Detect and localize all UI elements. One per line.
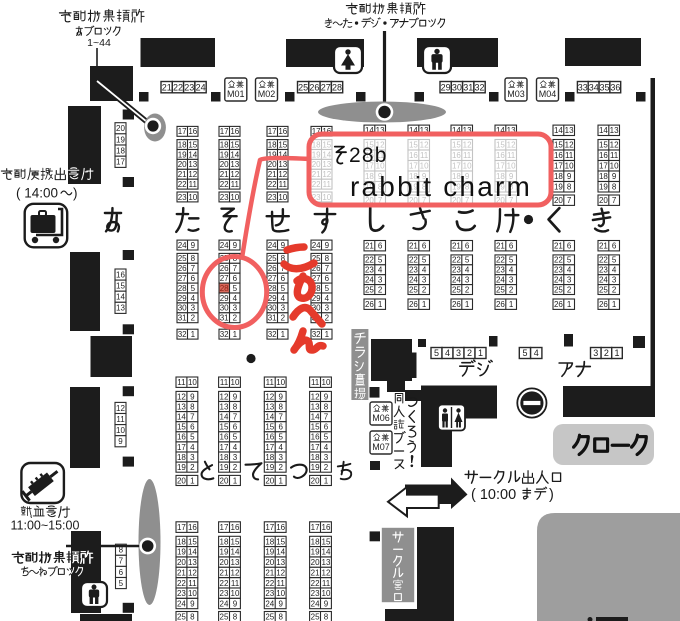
svg-text:15: 15 <box>599 141 608 150</box>
svg-text:15: 15 <box>177 423 186 432</box>
svg-text:5: 5 <box>509 256 514 265</box>
svg-text:10: 10 <box>230 193 239 202</box>
svg-text:M04: M04 <box>539 89 557 99</box>
svg-text:25: 25 <box>311 613 320 621</box>
svg-text:9: 9 <box>278 392 283 401</box>
svg-text:24: 24 <box>365 276 374 285</box>
svg-text:7: 7 <box>191 264 196 273</box>
svg-text:17: 17 <box>554 162 563 171</box>
svg-text:17: 17 <box>265 443 274 452</box>
svg-text:10: 10 <box>231 589 240 598</box>
svg-text:11: 11 <box>279 180 288 189</box>
svg-text:24: 24 <box>220 600 229 609</box>
svg-text:8: 8 <box>278 613 283 621</box>
svg-text:3: 3 <box>456 348 461 358</box>
svg-text:23: 23 <box>265 589 274 598</box>
svg-text:19: 19 <box>311 548 320 557</box>
svg-text:8: 8 <box>190 613 195 621</box>
svg-text:33: 33 <box>578 82 588 92</box>
svg-text:28: 28 <box>220 284 229 293</box>
svg-text:14: 14 <box>220 413 229 422</box>
svg-text:24: 24 <box>268 241 277 250</box>
svg-text:26: 26 <box>554 300 563 309</box>
svg-text:19: 19 <box>177 548 186 557</box>
svg-text:20: 20 <box>311 476 320 485</box>
svg-text:15: 15 <box>188 537 197 546</box>
svg-text:22: 22 <box>496 256 505 265</box>
svg-text:2: 2 <box>233 463 238 472</box>
svg-text:16: 16 <box>230 127 239 136</box>
svg-text:6: 6 <box>378 242 383 251</box>
svg-text:5: 5 <box>567 256 572 265</box>
svg-text:19: 19 <box>265 463 274 472</box>
svg-text:1: 1 <box>612 300 617 309</box>
svg-text:29: 29 <box>220 294 229 303</box>
svg-text:M02: M02 <box>258 89 276 99</box>
svg-text:4: 4 <box>278 443 283 452</box>
svg-text:23: 23 <box>268 193 277 202</box>
svg-text:17: 17 <box>177 523 186 532</box>
svg-text:20: 20 <box>554 196 563 205</box>
svg-text:14: 14 <box>554 126 563 135</box>
svg-text:17: 17 <box>220 523 229 532</box>
svg-text:11: 11 <box>266 378 275 387</box>
svg-text:1: 1 <box>233 330 238 339</box>
svg-text:18: 18 <box>554 172 563 181</box>
svg-text:17: 17 <box>268 127 277 136</box>
svg-text:25: 25 <box>452 285 461 294</box>
svg-text:6: 6 <box>191 274 196 283</box>
svg-text:36: 36 <box>610 82 620 92</box>
svg-text:21: 21 <box>220 568 229 577</box>
svg-text:24: 24 <box>178 241 187 250</box>
svg-text:3: 3 <box>281 304 286 313</box>
svg-text:13: 13 <box>565 126 574 135</box>
svg-text:22: 22 <box>311 579 320 588</box>
svg-text:16: 16 <box>599 151 608 160</box>
svg-text:23: 23 <box>599 266 608 275</box>
svg-text:20: 20 <box>265 558 274 567</box>
svg-text:21: 21 <box>365 242 374 251</box>
svg-text:16: 16 <box>276 523 285 532</box>
svg-text:2: 2 <box>378 285 383 294</box>
svg-text:18: 18 <box>311 537 320 546</box>
svg-text:4: 4 <box>422 266 427 275</box>
svg-text:9: 9 <box>190 392 195 401</box>
svg-text:10: 10 <box>231 378 240 387</box>
svg-text:17: 17 <box>599 162 608 171</box>
svg-text:1~44: 1~44 <box>87 37 111 49</box>
svg-text:14: 14 <box>599 126 608 135</box>
svg-text:1: 1 <box>281 330 286 339</box>
svg-text:7: 7 <box>612 196 617 205</box>
svg-text:6: 6 <box>190 423 195 432</box>
svg-text:3: 3 <box>509 276 514 285</box>
svg-text:23: 23 <box>178 193 187 202</box>
svg-text:3: 3 <box>378 276 383 285</box>
svg-text:17: 17 <box>220 443 229 452</box>
svg-text:34: 34 <box>589 82 599 92</box>
svg-text:21: 21 <box>554 242 563 251</box>
svg-text:12: 12 <box>188 170 197 179</box>
svg-text:2: 2 <box>509 285 514 294</box>
svg-text:4: 4 <box>190 443 195 452</box>
svg-text:14: 14 <box>177 413 186 422</box>
svg-text:27: 27 <box>321 82 331 92</box>
svg-text:5: 5 <box>422 256 427 265</box>
svg-text:17: 17 <box>177 443 186 452</box>
svg-text:3: 3 <box>612 276 617 285</box>
svg-text:9: 9 <box>118 437 123 446</box>
svg-text:8: 8 <box>324 402 329 411</box>
svg-text:M07: M07 <box>372 442 390 452</box>
svg-text:2: 2 <box>324 463 329 472</box>
svg-text:14: 14 <box>276 548 285 557</box>
svg-text:12: 12 <box>322 568 331 577</box>
svg-text:28: 28 <box>332 82 342 92</box>
svg-text:28b: 28b <box>349 144 388 167</box>
svg-text:13: 13 <box>230 160 239 169</box>
svg-text:24: 24 <box>599 276 608 285</box>
svg-text:14: 14 <box>188 548 197 557</box>
svg-text:35: 35 <box>599 82 609 92</box>
svg-text:2: 2 <box>612 285 617 294</box>
svg-text:2: 2 <box>281 314 286 323</box>
svg-text:24: 24 <box>311 600 320 609</box>
svg-text:8: 8 <box>278 402 283 411</box>
svg-text:26: 26 <box>268 264 277 273</box>
svg-text:10: 10 <box>188 193 197 202</box>
svg-text:2: 2 <box>465 285 470 294</box>
svg-text:23: 23 <box>311 589 320 598</box>
svg-text:8: 8 <box>612 183 617 192</box>
svg-text:5: 5 <box>233 433 238 442</box>
svg-text:7: 7 <box>567 196 572 205</box>
svg-text:31: 31 <box>463 82 473 92</box>
svg-text:11: 11 <box>231 180 240 189</box>
svg-text:18: 18 <box>220 453 229 462</box>
svg-text:2: 2 <box>278 463 283 472</box>
svg-text:9: 9 <box>324 392 329 401</box>
svg-text:1: 1 <box>614 348 619 358</box>
svg-text:25: 25 <box>178 254 187 263</box>
svg-text:23: 23 <box>496 266 505 275</box>
svg-text:27: 27 <box>220 274 229 283</box>
svg-text:6: 6 <box>278 423 283 432</box>
svg-text:16: 16 <box>116 270 125 279</box>
svg-text:4: 4 <box>465 266 470 275</box>
svg-text:12: 12 <box>278 170 287 179</box>
svg-text:5: 5 <box>281 284 286 293</box>
svg-text:8: 8 <box>190 402 195 411</box>
svg-text:19: 19 <box>177 463 186 472</box>
svg-text:26: 26 <box>452 300 461 309</box>
svg-text:23: 23 <box>409 266 418 275</box>
svg-text:18: 18 <box>178 140 187 149</box>
svg-text:11: 11 <box>322 579 331 588</box>
svg-text:5: 5 <box>325 284 330 293</box>
svg-text:23: 23 <box>554 266 563 275</box>
svg-text:17: 17 <box>116 158 125 167</box>
svg-text:22: 22 <box>554 256 563 265</box>
svg-text:26: 26 <box>599 300 608 309</box>
svg-text:1: 1 <box>378 300 383 309</box>
svg-text:12: 12 <box>231 568 240 577</box>
svg-text:13: 13 <box>116 304 125 313</box>
svg-text:4: 4 <box>281 294 286 303</box>
svg-text:4: 4 <box>191 294 196 303</box>
svg-text:18: 18 <box>177 537 186 546</box>
svg-text:30: 30 <box>178 304 187 313</box>
svg-text:4: 4 <box>534 348 539 358</box>
svg-text:32: 32 <box>178 330 187 339</box>
svg-text:1: 1 <box>324 476 329 485</box>
svg-text:7: 7 <box>190 413 195 422</box>
svg-text:9: 9 <box>324 600 329 609</box>
svg-text:8: 8 <box>325 254 330 263</box>
svg-text:25: 25 <box>298 82 308 92</box>
svg-text:5: 5 <box>191 284 196 293</box>
svg-text:16: 16 <box>554 151 563 160</box>
svg-text:26: 26 <box>309 82 319 92</box>
svg-text:15: 15 <box>322 537 331 546</box>
svg-text:25: 25 <box>220 613 229 621</box>
svg-text:6: 6 <box>119 568 124 577</box>
svg-text:7: 7 <box>233 264 238 273</box>
svg-text:13: 13 <box>188 558 197 567</box>
svg-text:6: 6 <box>233 274 238 283</box>
svg-text:11: 11 <box>277 579 286 588</box>
svg-text:12: 12 <box>177 392 186 401</box>
svg-text:21: 21 <box>496 242 505 251</box>
svg-text:9: 9 <box>612 172 617 181</box>
svg-text:2: 2 <box>190 463 195 472</box>
svg-text:10: 10 <box>610 162 619 171</box>
svg-text:24: 24 <box>496 276 505 285</box>
svg-text:29: 29 <box>178 294 187 303</box>
svg-text:22: 22 <box>265 579 274 588</box>
svg-text:24: 24 <box>409 276 418 285</box>
svg-text:M03: M03 <box>507 89 525 99</box>
svg-text:3: 3 <box>325 304 330 313</box>
svg-text:5: 5 <box>378 256 383 265</box>
svg-text:29: 29 <box>268 294 277 303</box>
svg-text:2: 2 <box>467 348 472 358</box>
svg-text:21: 21 <box>265 568 274 577</box>
svg-text:21: 21 <box>178 170 187 179</box>
svg-text:26: 26 <box>178 264 187 273</box>
svg-text:14: 14 <box>188 150 197 159</box>
svg-text:30: 30 <box>452 82 462 92</box>
svg-text:rabbit charm: rabbit charm <box>350 171 532 202</box>
svg-text:27: 27 <box>178 274 187 283</box>
svg-text:12: 12 <box>311 392 320 401</box>
svg-text:5: 5 <box>324 433 329 442</box>
svg-text:25: 25 <box>268 254 277 263</box>
svg-text:2: 2 <box>567 285 572 294</box>
svg-text:5: 5 <box>278 433 283 442</box>
svg-text:15: 15 <box>230 140 239 149</box>
svg-text:25: 25 <box>365 285 374 294</box>
svg-text:7: 7 <box>278 413 283 422</box>
svg-text:6: 6 <box>233 423 238 432</box>
svg-text:4: 4 <box>445 348 450 358</box>
svg-text:14: 14 <box>322 548 331 557</box>
svg-text:4: 4 <box>378 266 383 275</box>
svg-text:12: 12 <box>230 170 239 179</box>
svg-text:9: 9 <box>233 600 238 609</box>
svg-text:26: 26 <box>496 300 505 309</box>
svg-text:12: 12 <box>610 141 619 150</box>
svg-text:8: 8 <box>233 402 238 411</box>
svg-text:13: 13 <box>276 558 285 567</box>
svg-text:1: 1 <box>422 300 427 309</box>
svg-text:24: 24 <box>220 241 229 250</box>
svg-text:5: 5 <box>434 348 439 358</box>
svg-text:12: 12 <box>116 404 125 413</box>
svg-text:4: 4 <box>324 443 329 452</box>
svg-text:10: 10 <box>278 193 287 202</box>
svg-text:3: 3 <box>324 453 329 462</box>
svg-text:23: 23 <box>177 589 186 598</box>
svg-text:3: 3 <box>191 304 196 313</box>
svg-text:6: 6 <box>509 242 514 251</box>
svg-text:1: 1 <box>478 348 483 358</box>
svg-text:7: 7 <box>325 264 330 273</box>
svg-text:19: 19 <box>599 183 608 192</box>
svg-text:20: 20 <box>220 160 229 169</box>
svg-text:28: 28 <box>178 284 187 293</box>
svg-text:11: 11 <box>177 378 186 387</box>
svg-text:11: 11 <box>565 151 574 160</box>
svg-text:20: 20 <box>220 476 229 485</box>
svg-text:19: 19 <box>554 183 563 192</box>
svg-text:2: 2 <box>604 348 609 358</box>
svg-text:23: 23 <box>184 82 194 92</box>
svg-text:20: 20 <box>268 160 277 169</box>
svg-text:24: 24 <box>312 241 321 250</box>
svg-text:15: 15 <box>265 423 274 432</box>
svg-text:8: 8 <box>233 613 238 621</box>
svg-text:10: 10 <box>322 589 331 598</box>
svg-text:13: 13 <box>220 402 229 411</box>
svg-text:12: 12 <box>220 392 229 401</box>
svg-text:1: 1 <box>325 330 330 339</box>
svg-text:25: 25 <box>177 613 186 621</box>
svg-text:22: 22 <box>268 180 277 189</box>
svg-text:2: 2 <box>191 314 196 323</box>
svg-text:19: 19 <box>220 150 229 159</box>
svg-text:6: 6 <box>465 242 470 251</box>
svg-text:7: 7 <box>324 413 329 422</box>
svg-text:24: 24 <box>452 276 461 285</box>
svg-text:21: 21 <box>162 82 172 92</box>
svg-text:( 14:00: ( 14:00 <box>16 186 58 201</box>
svg-text:6: 6 <box>324 423 329 432</box>
svg-text:12: 12 <box>276 568 285 577</box>
svg-text:19: 19 <box>265 548 274 557</box>
svg-text:3: 3 <box>422 276 427 285</box>
svg-text:24: 24 <box>554 276 563 285</box>
svg-text:1: 1 <box>509 300 514 309</box>
svg-text:9: 9 <box>191 241 196 250</box>
svg-text:15: 15 <box>231 537 240 546</box>
svg-text:10: 10 <box>565 162 574 171</box>
svg-text:31: 31 <box>220 314 229 323</box>
svg-text:16: 16 <box>188 127 197 136</box>
svg-text:14: 14 <box>116 293 125 302</box>
svg-text:3: 3 <box>190 453 195 462</box>
svg-text:1: 1 <box>191 330 196 339</box>
svg-text:4: 4 <box>233 443 238 452</box>
svg-text:1: 1 <box>465 300 470 309</box>
svg-text:13: 13 <box>278 160 287 169</box>
svg-text:11:00~15:00: 11:00~15:00 <box>11 519 80 533</box>
svg-text:18: 18 <box>220 537 229 546</box>
svg-text:19: 19 <box>220 548 229 557</box>
svg-text:5: 5 <box>190 433 195 442</box>
svg-text:3: 3 <box>593 348 598 358</box>
svg-text:8: 8 <box>191 254 196 263</box>
svg-text:18: 18 <box>265 537 274 546</box>
svg-text:19: 19 <box>116 135 125 144</box>
svg-text:15: 15 <box>116 282 125 291</box>
svg-text:24: 24 <box>265 600 274 609</box>
svg-text:13: 13 <box>311 402 320 411</box>
svg-text:9: 9 <box>233 241 238 250</box>
svg-text:20: 20 <box>265 476 274 485</box>
svg-text:29: 29 <box>441 82 451 92</box>
svg-text:22: 22 <box>220 180 229 189</box>
svg-text:14: 14 <box>231 548 240 557</box>
svg-text:18: 18 <box>116 147 125 156</box>
svg-text:8: 8 <box>567 183 572 192</box>
svg-text:5: 5 <box>522 348 527 358</box>
svg-text:30: 30 <box>268 304 277 313</box>
svg-text:13: 13 <box>231 558 240 567</box>
svg-text:18: 18 <box>268 140 277 149</box>
svg-text:4: 4 <box>325 294 330 303</box>
svg-text:): ) <box>549 487 554 503</box>
svg-text:27: 27 <box>268 274 277 283</box>
svg-text:22: 22 <box>177 579 186 588</box>
svg-text:14: 14 <box>265 413 274 422</box>
svg-text:18: 18 <box>220 140 229 149</box>
svg-text:10: 10 <box>276 589 285 598</box>
svg-text:12: 12 <box>188 568 197 577</box>
svg-text:M01: M01 <box>227 89 245 99</box>
svg-text:11: 11 <box>311 378 320 387</box>
svg-text:20: 20 <box>177 558 186 567</box>
svg-text:4: 4 <box>509 266 514 275</box>
svg-text:25: 25 <box>599 285 608 294</box>
svg-text:2: 2 <box>325 314 330 323</box>
svg-text:11: 11 <box>220 378 229 387</box>
svg-text:3: 3 <box>278 453 283 462</box>
svg-text:14: 14 <box>230 150 239 159</box>
svg-text:23: 23 <box>220 589 229 598</box>
svg-text:3: 3 <box>233 453 238 462</box>
svg-text:16: 16 <box>177 433 186 442</box>
svg-text:25: 25 <box>496 285 505 294</box>
svg-text:11: 11 <box>116 415 125 424</box>
svg-text:21: 21 <box>599 242 608 251</box>
svg-text:19: 19 <box>178 150 187 159</box>
svg-text:7: 7 <box>119 557 124 566</box>
svg-text:11: 11 <box>188 579 197 588</box>
svg-text:25: 25 <box>409 285 418 294</box>
svg-text:9: 9 <box>190 600 195 609</box>
